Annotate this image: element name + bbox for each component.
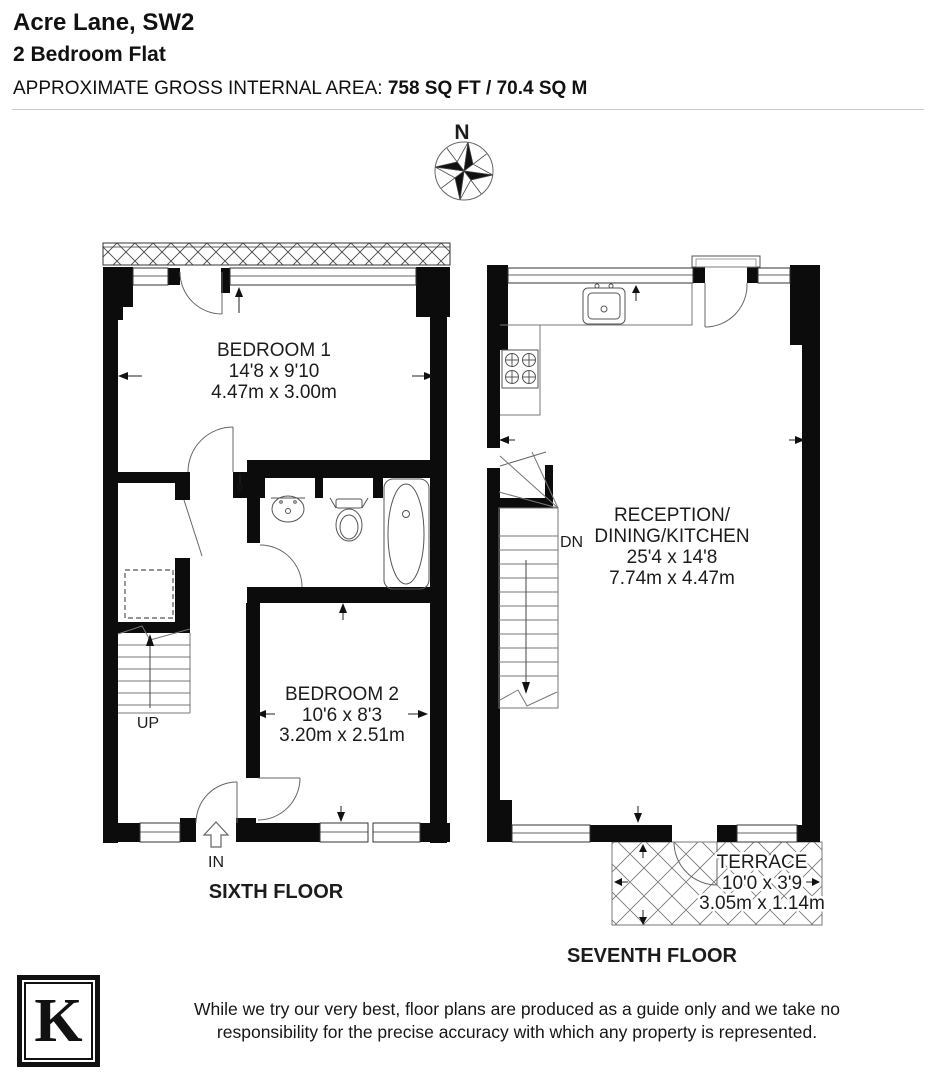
disclaimer: While we try our very best, floor plans … (104, 998, 930, 1044)
entrance-label: IN (208, 854, 224, 871)
dimension-arrows (509, 293, 812, 917)
bedroom1-name: BEDROOM 1 (217, 340, 331, 361)
cupboard-dashed-box (125, 570, 173, 618)
stairs-down-label: DN (560, 534, 583, 551)
disclaimer-line1: While we try our very best, floor plans … (104, 998, 930, 1021)
toilet-icon (330, 498, 368, 541)
bedroom1-metric: 4.47m x 3.00m (211, 382, 337, 403)
sink-icon (271, 496, 305, 522)
stairs-down-arrowhead (522, 682, 530, 694)
floorplan-drawing: N (0, 0, 936, 1080)
terrace-imperial: 10'0 x 3'9 (722, 873, 802, 894)
kitchen-counter (500, 283, 692, 415)
hob-icon (502, 350, 538, 388)
disclaimer-line2: responsibility for the precise accuracy … (104, 1021, 930, 1044)
terrace-name: TERRACE (717, 852, 808, 873)
stairs-up-label: UP (137, 715, 159, 732)
sixth-floor-label: SIXTH FLOOR (209, 881, 344, 903)
bedroom2-name: BEDROOM 2 (285, 684, 399, 705)
seventh-floor-label: SEVENTH FLOOR (567, 945, 738, 967)
door-frame (692, 256, 760, 267)
balcony-hatch (103, 243, 450, 265)
compass-rose-icon: N (431, 121, 497, 204)
stairs-up (118, 626, 190, 713)
reception-name-line2: DINING/KITCHEN (594, 526, 749, 547)
agency-logo: K (17, 975, 100, 1067)
kitchen-sink-icon (583, 284, 625, 324)
floorplan-page: Acre Lane, SW2 2 Bedroom Flat APPROXIMAT… (0, 0, 936, 1080)
agency-logo-letter: K (24, 982, 93, 1060)
bathroom-alcoves (265, 478, 430, 498)
reception-imperial: 25'4 x 14'8 (627, 547, 718, 568)
compass-north-label: N (454, 121, 469, 144)
bedroom1-imperial: 14'8 x 9'10 (229, 361, 320, 382)
entrance-arrow-icon (204, 822, 228, 847)
seventh-floor-plan: RECEPTION/ DINING/KITCHEN 25'4 x 14'8 7.… (487, 256, 825, 967)
bedroom2-metric: 3.20m x 2.51m (279, 725, 405, 746)
bedroom2-imperial: 10'6 x 8'3 (302, 705, 382, 726)
reception-name-line1: RECEPTION/ (614, 505, 731, 526)
sixth-floor-plan: BEDROOM 1 14'8 x 9'10 4.47m x 3.00m BEDR… (103, 243, 450, 903)
reception-metric: 7.74m x 4.47m (609, 568, 735, 589)
terrace-metric: 3.05m x 1.14m (699, 893, 825, 914)
